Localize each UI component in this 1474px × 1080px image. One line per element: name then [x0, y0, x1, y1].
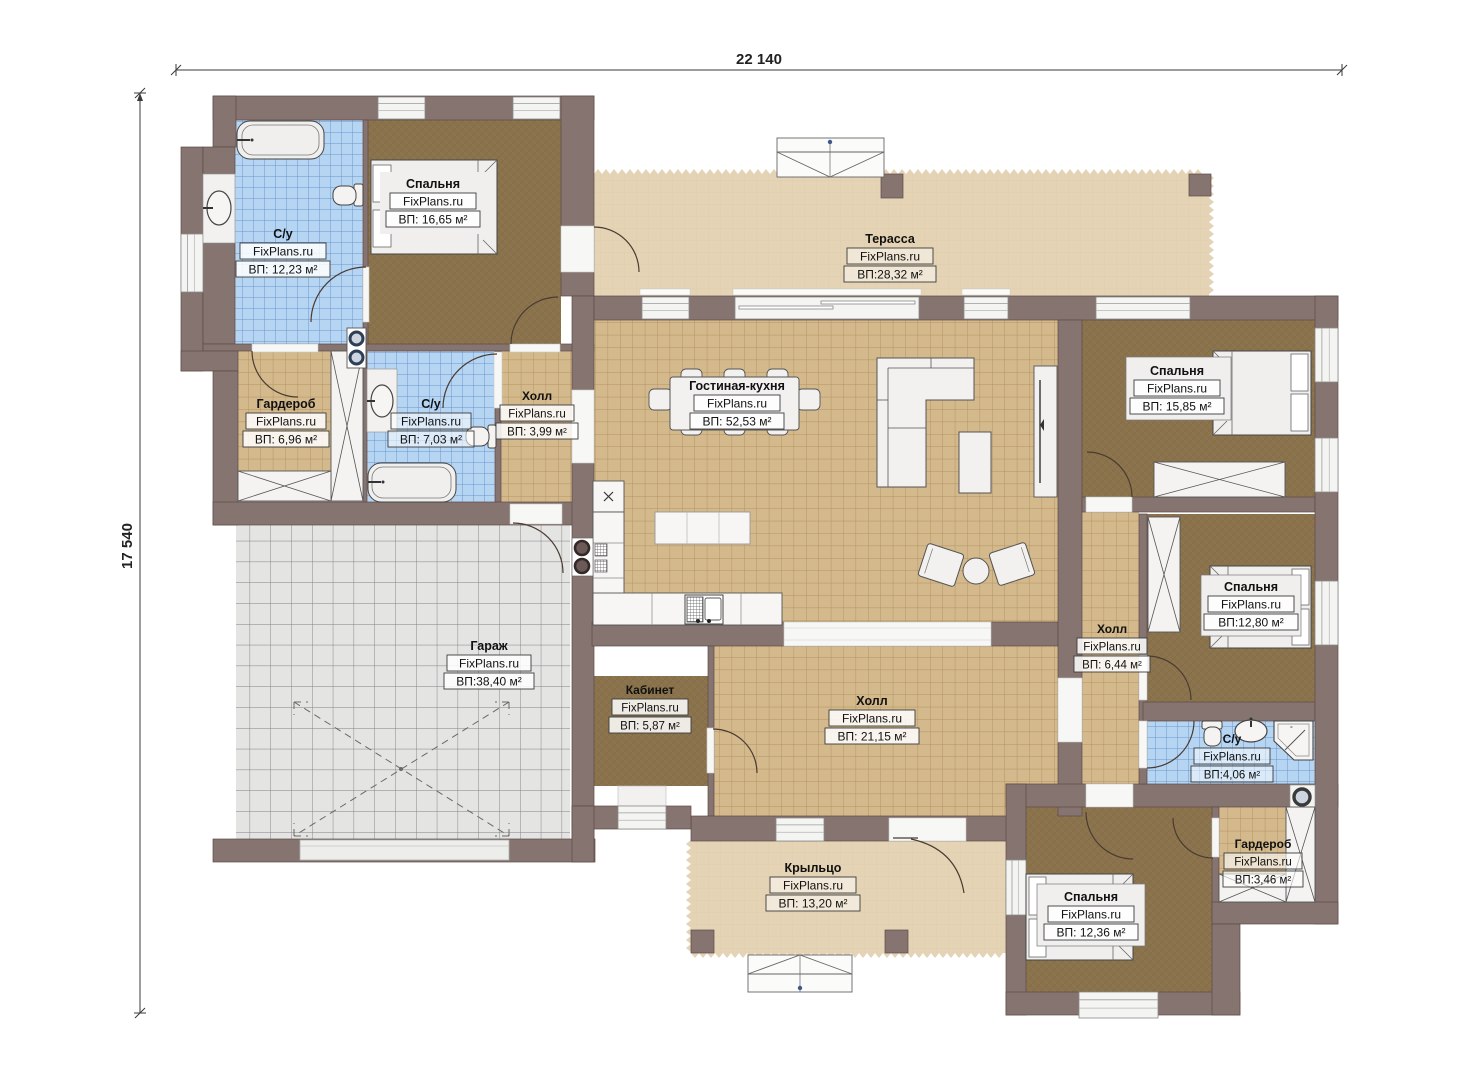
svg-text:Спальня: Спальня [1224, 580, 1278, 594]
svg-text:ВП: 7,03 м²: ВП: 7,03 м² [400, 433, 462, 447]
svg-text:Холл: Холл [522, 389, 552, 403]
svg-text:FixPlans.ru: FixPlans.ru [459, 657, 519, 671]
svg-text:FixPlans.ru: FixPlans.ru [1147, 382, 1207, 396]
svg-text:С/у: С/у [1223, 732, 1242, 746]
svg-text:FixPlans.ru: FixPlans.ru [860, 250, 920, 264]
svg-text:FixPlans.ru: FixPlans.ru [1203, 752, 1261, 764]
svg-text:ВП:12,80 м²: ВП:12,80 м² [1218, 616, 1284, 630]
svg-text:С/у: С/у [421, 397, 441, 411]
svg-text:FixPlans.ru: FixPlans.ru [403, 195, 463, 209]
svg-text:FixPlans.ru: FixPlans.ru [707, 397, 767, 411]
svg-text:Терасса: Терасса [865, 232, 916, 246]
svg-text:FixPlans.ru: FixPlans.ru [842, 712, 902, 726]
svg-text:FixPlans.ru: FixPlans.ru [253, 245, 313, 259]
svg-text:ВП: 21,15 м²: ВП: 21,15 м² [838, 730, 907, 744]
svg-text:22 140: 22 140 [736, 51, 782, 68]
svg-text:ВП:38,40 м²: ВП:38,40 м² [456, 675, 522, 689]
svg-text:FixPlans.ru: FixPlans.ru [783, 879, 843, 893]
svg-text:ВП: 16,65 м²: ВП: 16,65 м² [399, 213, 468, 227]
svg-text:ВП: 12,36 м²: ВП: 12,36 м² [1057, 926, 1126, 940]
svg-text:ВП: 3,99 м²: ВП: 3,99 м² [507, 427, 567, 439]
svg-text:Холл: Холл [1097, 622, 1127, 636]
svg-text:ВП: 6,96 м²: ВП: 6,96 м² [255, 433, 317, 447]
svg-text:Крыльцо: Крыльцо [785, 861, 842, 875]
svg-text:ВП: 52,53 м²: ВП: 52,53 м² [703, 415, 772, 429]
svg-text:°: ° [1290, 725, 1293, 733]
svg-text:ВП:4,06 м²: ВП:4,06 м² [1204, 770, 1261, 782]
svg-text:FixPlans.ru: FixPlans.ru [1061, 908, 1121, 922]
svg-text:FixPlans.ru: FixPlans.ru [508, 409, 566, 421]
svg-text:Кабинет: Кабинет [626, 683, 675, 697]
svg-text:FixPlans.ru: FixPlans.ru [1221, 598, 1281, 612]
svg-text:ВП: 5,87 м²: ВП: 5,87 м² [620, 721, 680, 733]
svg-text:FixPlans.ru: FixPlans.ru [1083, 642, 1141, 654]
svg-text:FixPlans.ru: FixPlans.ru [256, 415, 316, 429]
svg-text:Холл: Холл [856, 694, 887, 708]
svg-text:ВП:3,46 м²: ВП:3,46 м² [1235, 875, 1292, 887]
svg-text:Спальня: Спальня [1064, 890, 1118, 904]
svg-text:Гостиная-кухня: Гостиная-кухня [689, 379, 785, 393]
svg-text:Спальня: Спальня [406, 177, 460, 191]
svg-text:ВП: 12,23 м²: ВП: 12,23 м² [249, 263, 318, 277]
svg-text:Гардероб: Гардероб [256, 397, 315, 411]
svg-text:С/у: С/у [273, 227, 293, 241]
svg-text:FixPlans.ru: FixPlans.ru [1234, 857, 1292, 869]
svg-text:ВП: 15,85 м²: ВП: 15,85 м² [1143, 400, 1212, 414]
svg-text:Гардероб: Гардероб [1235, 837, 1292, 851]
svg-text:ВП: 13,20 м²: ВП: 13,20 м² [779, 897, 848, 911]
svg-text:Спальня: Спальня [1150, 364, 1204, 378]
svg-text:FixPlans.ru: FixPlans.ru [401, 415, 461, 429]
svg-text:17 540: 17 540 [119, 523, 136, 569]
svg-text:ВП:28,32 м²: ВП:28,32 м² [857, 268, 923, 282]
svg-text:Гараж: Гараж [470, 639, 507, 653]
svg-text:FixPlans.ru: FixPlans.ru [621, 703, 679, 715]
svg-text:ВП: 6,44 м²: ВП: 6,44 м² [1082, 660, 1142, 672]
